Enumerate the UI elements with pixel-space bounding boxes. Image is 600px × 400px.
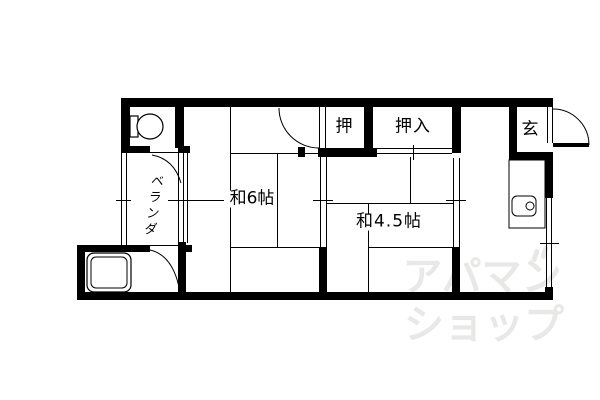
- toilet-icon: [137, 114, 163, 139]
- entrance-door-arc: [553, 109, 589, 145]
- wall-right-lower: [545, 287, 553, 300]
- wall-bath-top-stub: [178, 245, 192, 252]
- bathtub-icon: [91, 257, 127, 288]
- wall-toilet-left: [121, 98, 130, 153]
- room-label-entrance: 玄: [522, 122, 539, 139]
- wall-oshiire-right: [452, 107, 461, 153]
- wall-genkan-bottom: [509, 152, 551, 160]
- entrance-door-leaf: [553, 143, 589, 147]
- room-label-closet-large: 押入: [395, 119, 431, 136]
- floorplan-drawing: [0, 0, 600, 400]
- wall-toilet-bottom: [121, 146, 150, 153]
- room-label-washitsu45: 和4.5帖: [354, 214, 424, 231]
- wall-right-upper: [545, 152, 553, 198]
- kitchen-sink-faucet-icon: [526, 202, 534, 210]
- wall-bath-left: [77, 245, 85, 300]
- wall-door-jamb-block: [298, 147, 305, 157]
- room-label-washitsu6: 和6帖: [228, 191, 277, 208]
- bath-door-arc: [150, 250, 179, 287]
- wall-top: [121, 98, 553, 107]
- floorplan-page: アパマン ショップ: [0, 0, 600, 400]
- wall-room-divider-lower: [319, 247, 327, 300]
- wall-closet-divider: [364, 107, 373, 150]
- wall-toilet-door-stub: [178, 146, 190, 153]
- wall-toilet-right: [175, 98, 184, 148]
- room-label-closet-small: 押: [336, 119, 353, 136]
- closet-door-arc: [279, 108, 319, 148]
- wall-bottom: [77, 292, 553, 300]
- wall-kitchen-divider-lower: [452, 247, 460, 300]
- kitchen-counter: [509, 160, 545, 228]
- wall-bath-top: [77, 245, 150, 252]
